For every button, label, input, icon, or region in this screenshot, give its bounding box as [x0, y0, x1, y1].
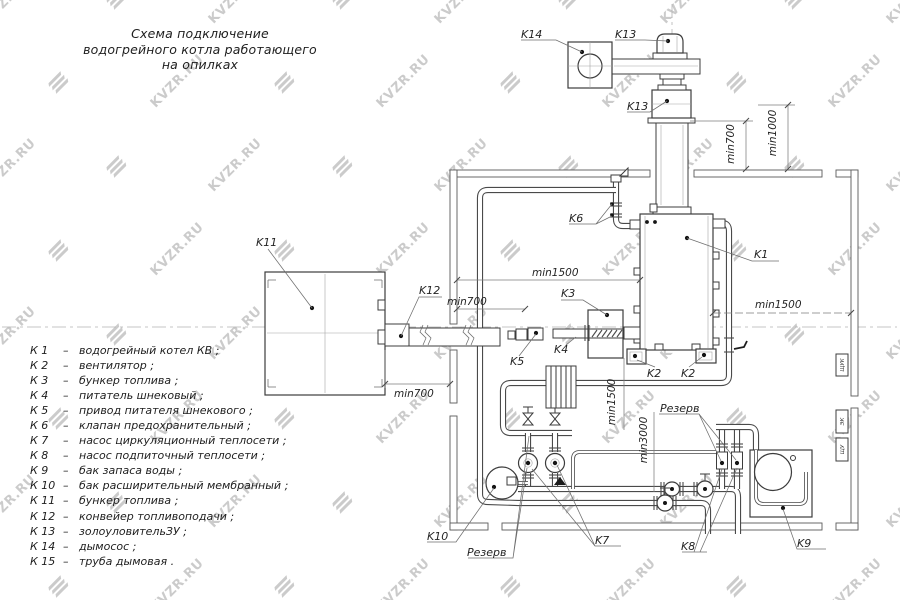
drawing-shape: [658, 85, 686, 90]
dim-min700-chimney: min700: [725, 124, 737, 164]
label-k10: K10: [427, 530, 448, 543]
drawing-shape: [550, 413, 560, 419]
boiler-k1: [630, 204, 725, 350]
drawing-shape: [507, 477, 516, 485]
label-k9: K9: [797, 537, 811, 550]
drawing-shape: [713, 310, 719, 317]
label-k5: K5: [510, 355, 524, 368]
drawing-shape: [630, 220, 640, 229]
drawing-shape: [703, 487, 707, 491]
label-reserve-right: Резерв: [660, 402, 699, 415]
drawing-shape: [648, 118, 695, 123]
drawing-shape: [612, 59, 700, 74]
cabinet-label-2: ЭК: [840, 417, 846, 427]
drawing-shape: [523, 419, 533, 425]
drawing-shape: [660, 74, 684, 79]
drawing-shape: [851, 170, 858, 396]
drawing-shape: [645, 220, 649, 224]
drawing-shape: [791, 456, 796, 461]
drawing-shape: [713, 338, 719, 345]
drawing-shape: [640, 214, 713, 350]
drawing-shape: [634, 306, 640, 313]
drawing-shape: [633, 354, 637, 358]
label-k11: K11: [256, 236, 277, 249]
drawing-shape: [735, 461, 739, 465]
grate: [546, 366, 576, 408]
drawing-shape: [663, 501, 667, 505]
drawing-shape: [655, 344, 663, 350]
drawing-shape: [634, 268, 640, 275]
fuel-bunker-k11: [265, 272, 385, 395]
label-k8: K8: [681, 540, 695, 553]
drawing-shape: [508, 331, 515, 339]
fan-k2-left: [627, 349, 646, 364]
label-k13-top: K13: [615, 28, 636, 41]
drawing-shape: [378, 300, 385, 310]
dim-min700-feeder: min700: [447, 296, 487, 308]
drawing-shape: [653, 207, 691, 214]
drawing-shape: [526, 461, 530, 465]
label-k2-right: K2: [681, 367, 695, 380]
drawing-shape: [713, 219, 725, 228]
dim-min1500-vert: min1500: [606, 378, 618, 425]
drawing-shape: [694, 170, 822, 177]
drawing-shape: [502, 523, 822, 530]
label-k7: K7: [595, 534, 609, 547]
drawing-shape: [653, 220, 657, 224]
scheme-canvas: KVZR.RUKVZR.RUKVZR.RUKVZR.RUKVZR.RUKVZR.…: [0, 0, 900, 600]
drawing-shape: [523, 413, 533, 419]
label-k12: K12: [419, 284, 440, 297]
wall-cabinets: ЩУК ЭК ЩУ: [836, 354, 848, 461]
water-tank-k9: [750, 450, 812, 517]
flue-connector: [658, 74, 686, 90]
drawing-shape: [624, 327, 640, 339]
drawing-shape: [734, 341, 747, 349]
centerlines: [2, 4, 897, 327]
cabinet-label-1: ЩУК: [840, 357, 846, 371]
dim-min3000: min3000: [638, 416, 650, 463]
drawing-shape: [851, 408, 858, 530]
drawing-shape: [836, 523, 858, 530]
label-k1: K1: [754, 248, 768, 261]
drawing-shape: [653, 53, 687, 59]
feeder-drive-k5: [508, 328, 543, 340]
label-k3: K3: [561, 287, 575, 300]
drawing-shape: [550, 419, 560, 425]
label-k6: K6: [569, 212, 583, 225]
drawing-shape: [409, 328, 500, 346]
label-k13-mid: K13: [627, 100, 648, 113]
cabinet-label-3: ЩУ: [840, 444, 846, 454]
fan-k2-right: [696, 349, 716, 363]
drawing-shape: [561, 300, 607, 315]
expansion-tank-k10: [486, 467, 518, 499]
dim-min1500-left: min1500: [532, 267, 579, 279]
drawing-shape: [516, 329, 527, 340]
drawing-shape: [378, 330, 385, 344]
ash-catcher-k13-top: [653, 34, 687, 59]
drawing-shape: [720, 461, 724, 465]
drawing-shape: [553, 461, 557, 465]
drawing-shape: [450, 416, 457, 530]
dim-min1000: min1000: [767, 109, 779, 156]
dim-min700-conveyor: min700: [394, 388, 434, 400]
label-k14: K14: [521, 28, 542, 41]
ash-catcher-k13: [652, 90, 691, 118]
horizontal-flue: [612, 59, 700, 74]
drawing-shape: [663, 79, 681, 85]
drawing-shape: [670, 487, 674, 491]
diagram: ЩУК ЭК ЩУ min1500 min700 min700 min1500 …: [0, 0, 900, 600]
drawing-shape: [713, 252, 719, 259]
label-reserve-left: Резерв: [467, 546, 506, 559]
chimney-duct: [648, 118, 695, 214]
drawing-shape: [650, 204, 657, 212]
drawing-shape: [755, 454, 792, 491]
label-k2-left: K2: [647, 367, 661, 380]
drawing-shape: [732, 452, 743, 469]
dim-min1500-right: min1500: [755, 299, 802, 311]
label-k4: K4: [554, 343, 568, 356]
drawing-shape: [450, 350, 457, 403]
drawing-shape: [657, 34, 683, 53]
drawing-shape: [702, 353, 706, 357]
drawing-shape: [713, 282, 719, 289]
